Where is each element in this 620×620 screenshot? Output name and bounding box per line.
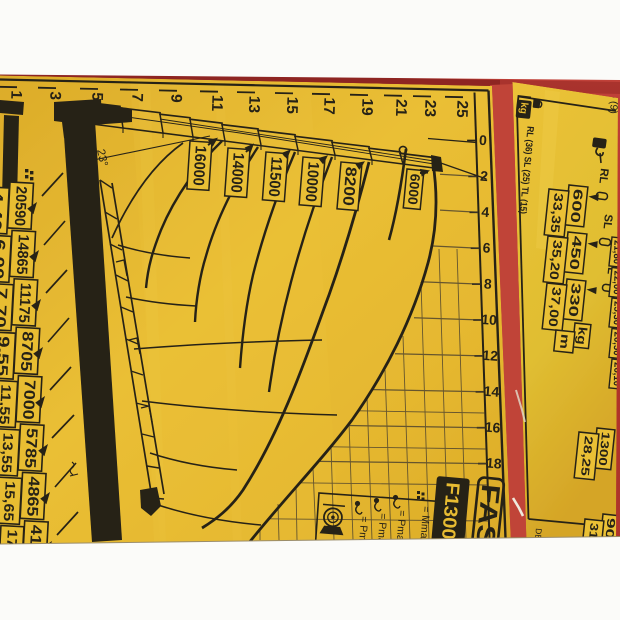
svg-text:23: 23: [421, 99, 439, 117]
svg-text:RL: RL: [596, 168, 610, 185]
svg-text:4: 4: [481, 204, 490, 221]
svg-text:15: 15: [283, 96, 301, 114]
svg-text:11: 11: [208, 95, 226, 112]
svg-text:6,00: 6,00: [0, 239, 8, 280]
svg-text:12: 12: [482, 347, 499, 364]
svg-text:8200: 8200: [339, 166, 359, 206]
svg-text:8: 8: [483, 275, 492, 292]
svg-text:7: 7: [128, 93, 145, 102]
svg-text:16: 16: [484, 419, 501, 436]
svg-text:kg: kg: [574, 326, 590, 345]
svg-text:1: 1: [7, 90, 24, 100]
svg-text:13: 13: [245, 95, 263, 113]
svg-text:14000: 14000: [227, 152, 247, 193]
svg-text:10: 10: [481, 311, 498, 328]
svg-text:11500: 11500: [265, 156, 285, 197]
svg-text:15,65: 15,65: [1, 481, 19, 522]
svg-text:13,55: 13,55: [0, 432, 17, 473]
svg-text:m: m: [557, 333, 572, 349]
svg-text:4,40: 4,40: [0, 190, 6, 231]
svg-text:7,70: 7,70: [0, 287, 10, 328]
svg-text:20590: 20590: [11, 186, 30, 227]
svg-text:16000: 16000: [189, 145, 209, 186]
svg-text:7000: 7000: [19, 379, 38, 420]
svg-text:25: 25: [453, 100, 471, 118]
svg-text:5785: 5785: [21, 428, 40, 469]
svg-text:14: 14: [483, 383, 500, 400]
svg-text:21: 21: [392, 99, 410, 117]
svg-text:0: 0: [479, 132, 488, 149]
svg-text:18: 18: [486, 455, 503, 472]
svg-text:SL: SL: [600, 214, 613, 230]
svg-text:8705: 8705: [17, 331, 36, 372]
svg-text:14865: 14865: [13, 234, 32, 275]
svg-text:11,55: 11,55: [0, 384, 15, 425]
svg-text:9,55: 9,55: [0, 336, 12, 377]
svg-text:9: 9: [167, 94, 184, 104]
svg-text:19: 19: [358, 98, 376, 116]
svg-text:10000: 10000: [302, 161, 322, 202]
svg-text:2: 2: [480, 168, 489, 185]
svg-text:6: 6: [482, 239, 491, 256]
svg-text:4865: 4865: [23, 476, 42, 517]
svg-text:kg: kg: [517, 102, 529, 115]
svg-text:3: 3: [46, 91, 63, 101]
svg-text:17: 17: [320, 97, 338, 115]
svg-text:6000: 6000: [405, 173, 423, 205]
svg-text:11175: 11175: [15, 282, 34, 323]
